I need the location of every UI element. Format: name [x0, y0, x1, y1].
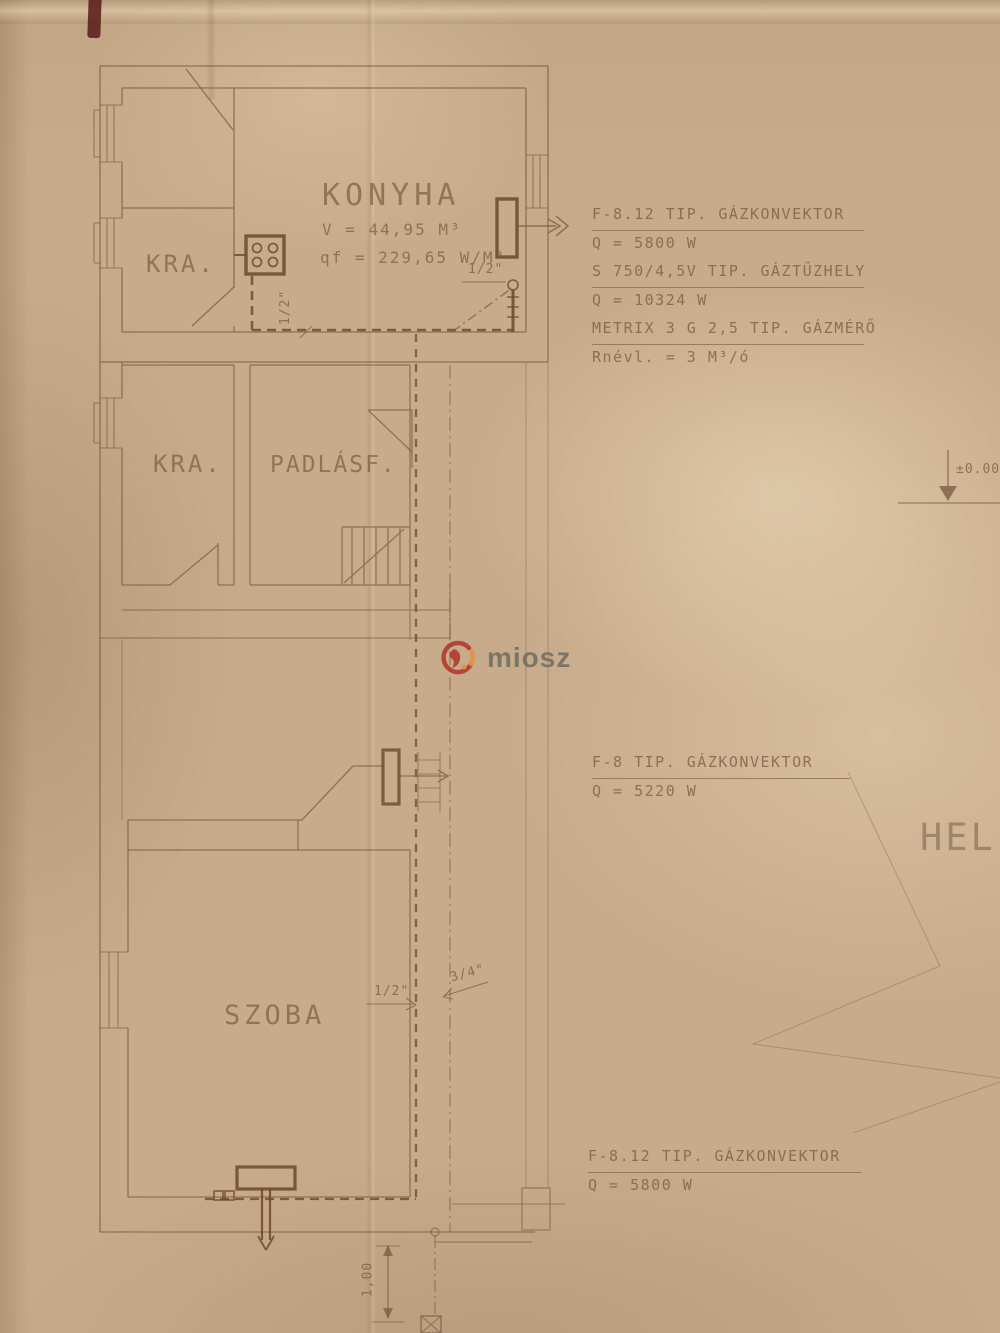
- pipe-label-szoba-riser: 1/2": [374, 984, 409, 999]
- note-line: METRIX 3 G 2,5 TIP. GÁZMÉRŐ: [592, 316, 864, 345]
- note-line: Rnévl. = 3 M³/ó: [592, 345, 864, 373]
- scanned-floor-plan: KONYHA V = 44,95 M³ qf = 229,65 W/M³ KRA…: [0, 0, 1000, 1333]
- stairs-symbol: [342, 527, 410, 585]
- level-triangle-icon: [939, 486, 957, 501]
- gas-stove-symbol: [246, 236, 284, 274]
- konyha-volume-value: V = 44,95 M³: [322, 220, 462, 239]
- note-line: F-8 TIP. GÁZKONVEKTOR: [592, 750, 850, 779]
- note-line: Q = 5220 W: [592, 779, 850, 807]
- room-label-kra-mid: KRA.: [153, 450, 223, 478]
- room-label-szoba: SZOBA: [224, 1000, 325, 1031]
- note-line: Q = 5800 W: [592, 231, 864, 259]
- miosz-logo-icon: [436, 636, 480, 680]
- window-symbols: [94, 105, 548, 1028]
- middle-section-walls: [100, 365, 450, 640]
- convector-symbol-upper: [383, 750, 399, 804]
- note-line: S 750/4,5V TIP. GÁZTŰZHELY: [592, 259, 864, 288]
- room-label-konyha: KONYHA: [322, 178, 460, 213]
- level-marker-label: ±0.00: [956, 462, 1000, 477]
- watermark-text: miosz: [487, 642, 571, 674]
- pipe-arrow-down: [258, 1236, 274, 1250]
- pipe-label-kitchen-vertical: 1/2": [278, 290, 293, 325]
- convector-symbol-szoba: [237, 1167, 295, 1189]
- note-line: F-8.12 TIP. GÁZKONVEKTOR: [588, 1144, 862, 1173]
- pipe-label-kitchen-riser: 1/2": [468, 262, 503, 277]
- note-line: Q = 5800 W: [588, 1173, 862, 1201]
- site-plan-title-partial: HEL: [920, 816, 996, 859]
- vertical-service-lines: [416, 334, 450, 1232]
- note-line: Q = 10324 W: [592, 288, 864, 316]
- watermark: miosz: [436, 636, 571, 680]
- room-label-padlasf: PADLÁSF.: [270, 452, 397, 478]
- lower-convector-note: F-8.12 TIP. GÁZKONVEKTOR Q = 5800 W: [588, 1144, 862, 1201]
- top-section-walls: [100, 69, 548, 362]
- note-line: F-8.12 TIP. GÁZKONVEKTOR: [592, 202, 864, 231]
- kitchen-equipment-note: F-8.12 TIP. GÁZKONVEKTOR Q = 5800 W S 75…: [592, 202, 864, 373]
- bottom-wing-walls: [100, 766, 565, 1242]
- upper-convector-note: F-8 TIP. GÁZKONVEKTOR Q = 5220 W: [592, 750, 850, 807]
- room-label-kra-top: KRA.: [146, 250, 216, 278]
- dimension-label: 1,00: [361, 1250, 376, 1310]
- bottom-dimension-and-meter: [372, 1228, 441, 1333]
